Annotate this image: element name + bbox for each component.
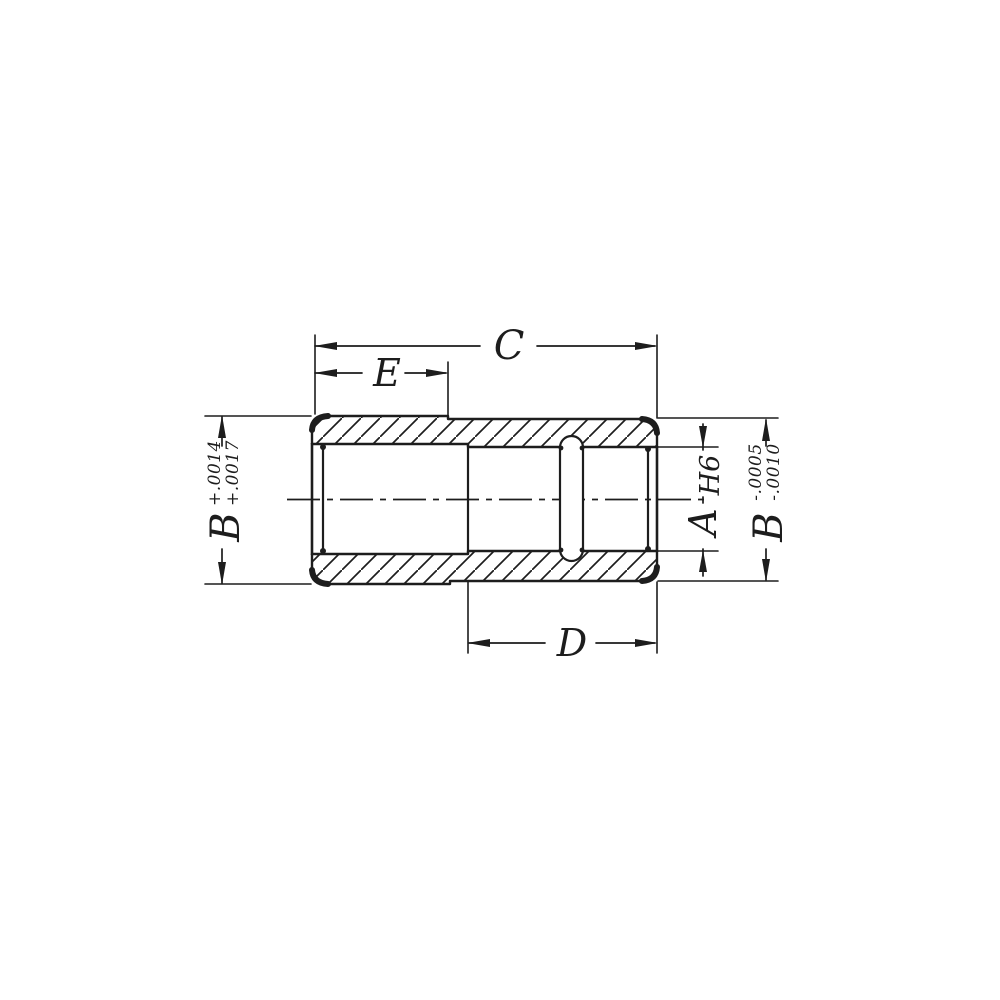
arrow-b-right-top	[762, 418, 770, 441]
arrow-a-top	[699, 426, 707, 448]
drawing-canvas: C E D B +.0014 +.0017 H6 A B -.0005 -.00…	[0, 0, 1000, 1000]
arrow-b-left-bottom	[218, 562, 226, 585]
arrow-c-left	[314, 342, 337, 350]
dim-label-overall-length-C: C	[494, 323, 525, 369]
arrow-e-right	[426, 369, 449, 377]
dimension-labels: C E D B +.0014 +.0017 H6 A B -.0005 -.00…	[203, 323, 792, 665]
arrow-a-bottom	[699, 550, 707, 572]
tolerance-od-right-upper: -.0005	[746, 443, 766, 500]
arrow-c-right	[635, 342, 658, 350]
bottom-wall-hatched	[312, 551, 657, 584]
arrow-b-left-top	[218, 415, 226, 438]
arrow-b-right-bottom	[762, 559, 770, 582]
bushing-section-drawing: C E D B +.0014 +.0017 H6 A B -.0005 -.00…	[0, 0, 1000, 1000]
dimension-arrows	[218, 342, 770, 647]
dim-label-od-left-B: B	[203, 512, 249, 542]
top-wall-hatched	[312, 416, 657, 447]
cross-slot	[560, 436, 583, 561]
tolerance-od-left-upper: +.0014	[205, 440, 225, 506]
arrow-e-left	[314, 369, 337, 377]
dim-label-od-right-B: B	[746, 512, 792, 542]
arrow-d-right	[635, 639, 658, 647]
dim-label-left-section-E: E	[372, 351, 401, 395]
tolerance-od-left-lower: +.0017	[223, 440, 243, 506]
dimension-lines	[222, 346, 766, 643]
dim-label-bore-fit-H6: H6	[695, 455, 726, 497]
dim-label-right-section-D: D	[556, 621, 587, 665]
extension-lines	[205, 335, 778, 653]
dim-label-bore-A: A	[681, 508, 725, 538]
tolerance-od-right-lower: -.0010	[764, 443, 784, 500]
arrow-d-left	[467, 639, 490, 647]
